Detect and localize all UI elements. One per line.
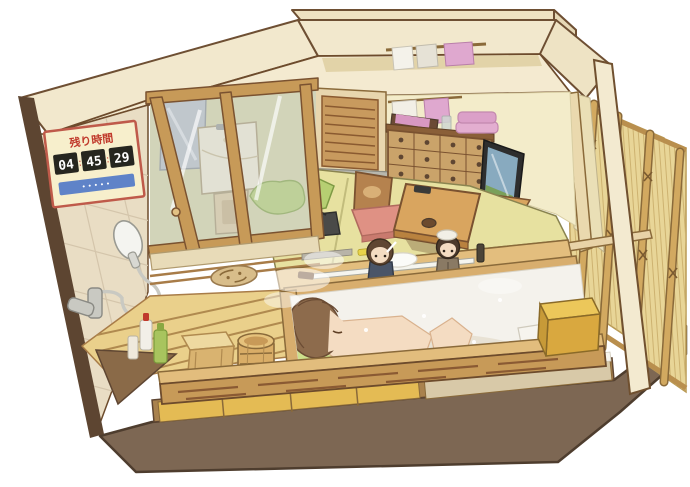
glass-door-group bbox=[146, 78, 324, 284]
hanging-towel-grey bbox=[416, 44, 438, 68]
green-cap bbox=[157, 323, 164, 331]
sign-minutes: 45 bbox=[85, 154, 102, 171]
hanging-towel-pink bbox=[444, 42, 474, 66]
small-dark-bottle bbox=[477, 244, 484, 262]
pump-bottle bbox=[128, 336, 138, 359]
red-cap-bottle bbox=[140, 320, 152, 350]
green-bottle bbox=[154, 330, 167, 363]
chibi-right-towel bbox=[437, 230, 457, 240]
sign-seconds: 29 bbox=[113, 150, 130, 167]
sign-hours: 04 bbox=[58, 157, 76, 174]
door-handle bbox=[172, 208, 180, 216]
zaisu-backrest-cutout bbox=[363, 186, 381, 198]
tea-bowl bbox=[422, 219, 436, 228]
chibi-left-eye bbox=[384, 255, 387, 258]
red-cap bbox=[143, 313, 149, 321]
chibi-left-eye bbox=[375, 255, 378, 258]
yellow-caddy-box bbox=[538, 298, 600, 356]
chibi-right-eye bbox=[443, 250, 446, 253]
bathhouse-cutaway-illustration: 残り時間 04 45 29 : : ••••• bbox=[0, 0, 690, 487]
hanging-towel-white bbox=[392, 46, 414, 70]
folded-pink-towels bbox=[456, 112, 498, 133]
chibi-right-eye bbox=[451, 250, 454, 253]
scene-svg: 残り時間 04 45 29 : : ••••• bbox=[0, 0, 690, 487]
roof-rim-top bbox=[298, 20, 578, 57]
remaining-time-sign: 残り時間 04 45 29 : : ••••• bbox=[44, 121, 145, 208]
